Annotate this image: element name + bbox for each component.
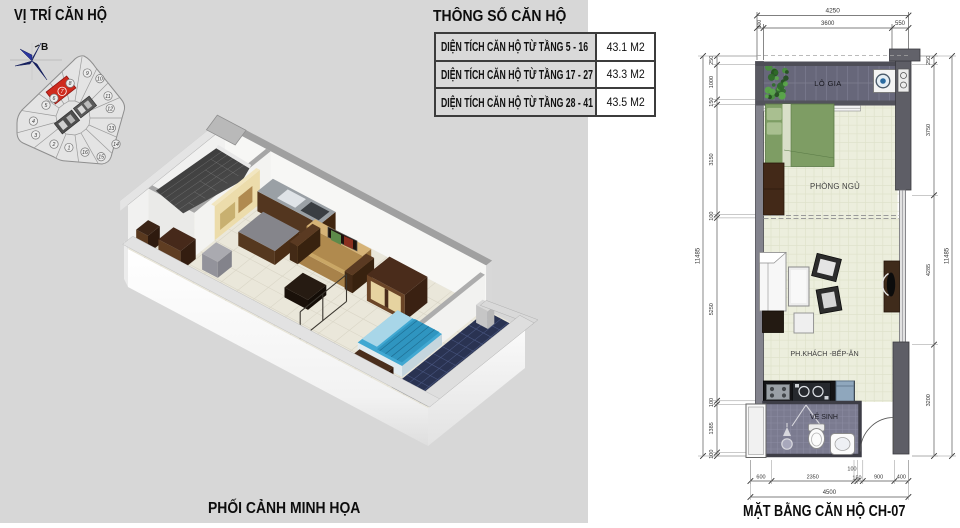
svg-text:100: 100 [847, 467, 856, 473]
svg-text:400: 400 [897, 475, 906, 481]
svg-text:PHÒNG NGỦ: PHÒNG NGỦ [810, 182, 860, 191]
svg-text:3150: 3150 [709, 153, 715, 165]
svg-text:100: 100 [709, 398, 715, 407]
svg-text:3600: 3600 [821, 21, 835, 27]
svg-text:250: 250 [926, 56, 932, 65]
svg-text:4250: 4250 [825, 8, 840, 15]
svg-text:100: 100 [709, 450, 715, 459]
svg-text:2350: 2350 [807, 475, 819, 481]
svg-text:3750: 3750 [926, 124, 932, 136]
svg-text:100: 100 [757, 20, 763, 29]
svg-text:150: 150 [709, 98, 715, 107]
svg-text:1000: 1000 [709, 76, 715, 88]
svg-text:LÔ GIA: LÔ GIA [814, 79, 841, 88]
svg-text:900: 900 [874, 475, 883, 481]
svg-text:PH.KHÁCH -BẾP-ĂN: PH.KHÁCH -BẾP-ĂN [790, 348, 858, 358]
svg-text:VỆ SINH: VỆ SINH [810, 412, 838, 421]
svg-text:3200: 3200 [926, 394, 932, 406]
svg-text:5250: 5250 [709, 303, 715, 315]
svg-text:100: 100 [709, 212, 715, 221]
svg-text:250: 250 [709, 56, 715, 65]
svg-text:600: 600 [756, 475, 765, 481]
svg-text:550: 550 [895, 21, 906, 27]
svg-text:4285: 4285 [926, 264, 932, 276]
svg-text:11485: 11485 [696, 247, 702, 264]
svg-text:11485: 11485 [945, 247, 951, 264]
svg-text:4500: 4500 [823, 490, 837, 496]
svg-text:1385: 1385 [709, 422, 715, 434]
